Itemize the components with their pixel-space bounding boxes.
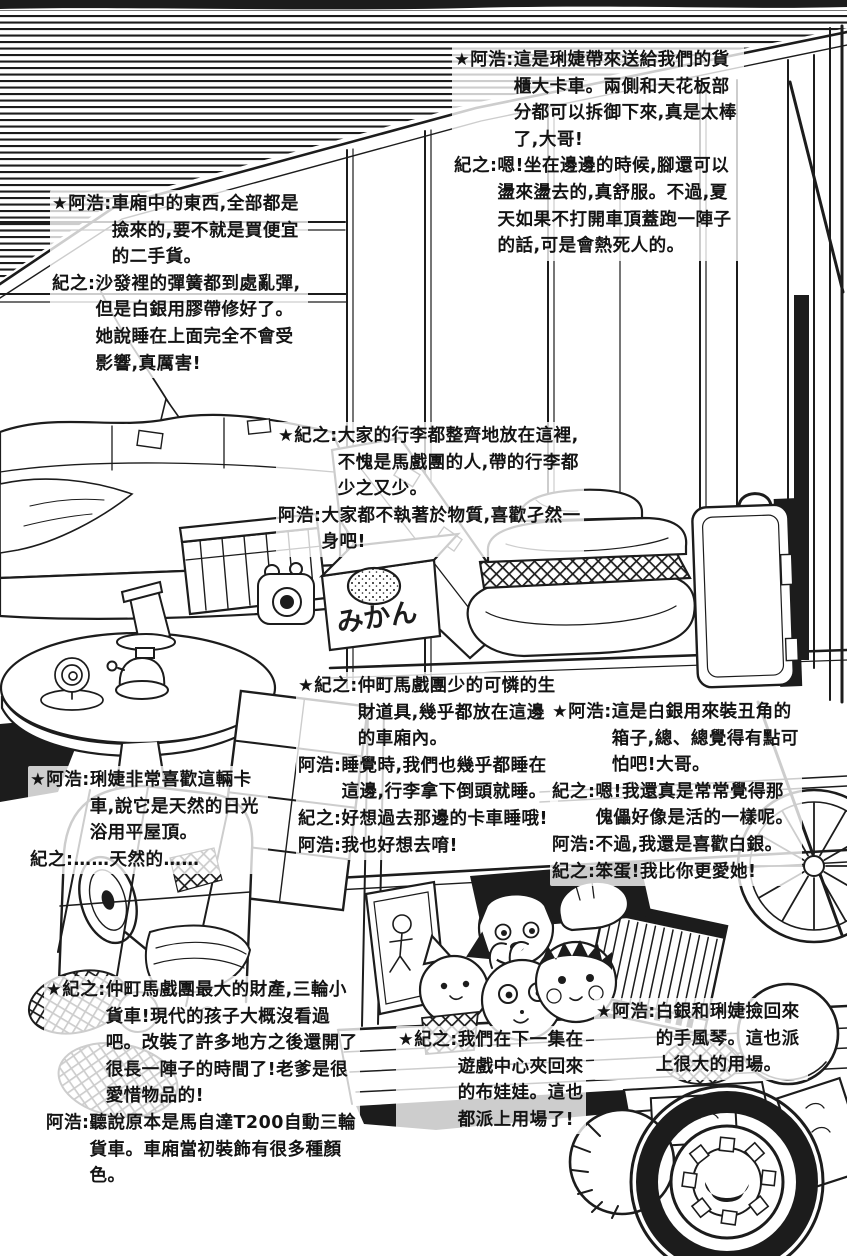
speaker-label: 紀之: xyxy=(454,153,498,180)
dialogue-line: ★紀之: 大家的行李都整齊地放在這裡,不愧是馬戲團的人,帶的行李都少之又少。 xyxy=(278,423,582,503)
dialogue-line: ★阿浩: 白銀和琍婕撿回來的手風琴。這也派上很大的用場。 xyxy=(596,999,806,1079)
caption-luggage: ★紀之: 大家的行李都整齊地放在這裡,不愧是馬戲團的人,帶的行李都少之又少。 阿… xyxy=(276,422,584,557)
dialogue-text: 睡覺時,我們也幾乎都睡在這邊,行李拿下倒頭就睡。 xyxy=(342,753,557,806)
dialogue-text: 車廂中的東西,全部都是撿來的,要不就是買便宜的二手貨。 xyxy=(112,191,306,271)
speaker-label: ★阿浩: xyxy=(30,767,90,794)
speaker-label: 紀之: xyxy=(52,271,96,298)
speaker-label: ★紀之: xyxy=(46,977,106,1004)
dialogue-line: 紀之: 沙發裡的彈簧都到處亂彈,但是白銀用膠帶修好了。她說睡在上面完全不會受影響… xyxy=(52,271,306,377)
caption-cabin-contents: ★阿浩: 車廂中的東西,全部都是撿來的,要不就是買便宜的二手貨。 紀之: 沙發裡… xyxy=(50,190,308,378)
dialogue-line: ★阿浩: 這是白銀用來裝丑角的箱子,總、總覺得有點可怕吧!大哥。 xyxy=(552,699,800,779)
caption-container-truck: ★阿浩: 這是琍婕帶來送給我們的貨櫃大卡車。兩側和天花板部分都可以拆御下來,真是… xyxy=(452,46,744,261)
page-top-edge xyxy=(0,0,847,9)
speaker-label: 阿浩: xyxy=(46,1110,90,1137)
speaker-label: 阿浩: xyxy=(298,753,342,780)
dialogue-text: 我也好想去唷! xyxy=(342,833,557,860)
speaker-label: 阿浩: xyxy=(552,832,596,859)
speaker-label: ★阿浩: xyxy=(596,999,656,1026)
speaker-label: 阿浩: xyxy=(298,833,342,860)
dialogue-text: 嗯!我還真是常常覺得那傀儡好像是活的一樣呢。 xyxy=(596,779,801,832)
dialogue-text: 這是白銀用來裝丑角的箱子,總、總覺得有點可怕吧!大哥。 xyxy=(612,699,800,779)
dialogue-text: 聽說原本是馬自達T200自動三輪貨車。車廂當初裝飾有很多種顏色。 xyxy=(90,1110,359,1190)
dialogue-text: 好想過去那邊的卡車睡哦! xyxy=(342,806,557,833)
caption-accordion: ★阿浩: 白銀和琍婕撿回來的手風琴。這也派上很大的用場。 xyxy=(594,998,808,1080)
dialogue-text: 琍婕非常喜歡這輛卡車,說它是天然的日光浴用平屋頂。 xyxy=(90,767,266,847)
dialogue-text: 仲町馬戲團少的可憐的生財道具,幾乎都放在這邊的車廂內。 xyxy=(358,673,556,753)
caption-three-wheeler: ★紀之: 仲町馬戲團最大的財產,三輪小貨車!現代的孩子大概沒看過吧。改裝了許多地… xyxy=(44,976,360,1191)
dialogue-line: 紀之: 嗯!坐在邊邊的時候,腳還可以盪來盪去的,真舒服。不過,夏天如果不打開車頂… xyxy=(454,153,742,259)
caption-flat-roof: ★阿浩: 琍婕非常喜歡這輛卡車,說它是天然的日光浴用平屋頂。 紀之: ……天然的… xyxy=(28,766,268,874)
dialogue-text: 大家的行李都整齊地放在這裡,不愧是馬戲團的人,帶的行李都少之又少。 xyxy=(338,423,582,503)
dialogue-line: ★紀之: 我們在下一集在遊戲中心夾回來的布娃娃。這也都派上用場了! xyxy=(398,1027,584,1133)
dialogue-line: 紀之: ……天然的…… xyxy=(30,847,266,874)
dialogue-line: ★阿浩: 這是琍婕帶來送給我們的貨櫃大卡車。兩側和天花板部分都可以拆御下來,真是… xyxy=(454,47,742,153)
dialogue-line: 阿浩: 不過,我還是喜歡白銀。 xyxy=(552,832,800,859)
dialogue-line: 阿浩: 我也好想去唷! xyxy=(298,833,556,860)
dialogue-text: 不過,我還是喜歡白銀。 xyxy=(596,832,801,859)
dialogue-line: 阿浩: 睡覺時,我們也幾乎都睡在這邊,行李拿下倒頭就睡。 xyxy=(298,753,556,806)
dialogue-text: 笨蛋!我比你更愛她! xyxy=(596,859,801,886)
dialogue-line: 紀之: 嗯!我還真是常常覺得那傀儡好像是活的一樣呢。 xyxy=(552,779,800,832)
speaker-label: 紀之: xyxy=(298,806,342,833)
dialogue-text: 沙發裡的彈簧都到處亂彈,但是白銀用膠帶修好了。她說睡在上面完全不會受影響,真厲害… xyxy=(96,271,307,377)
speaker-label: ★紀之: xyxy=(278,423,338,450)
dialogue-text: ……天然的…… xyxy=(74,847,267,874)
dialogue-line: ★紀之: 仲町馬戲團最大的財產,三輪小貨車!現代的孩子大概沒看過吧。改裝了許多地… xyxy=(46,977,358,1110)
manga-page: みかん xyxy=(0,0,847,1256)
speaker-label: 紀之: xyxy=(30,847,74,874)
speaker-label: 阿浩: xyxy=(278,503,322,530)
dialogue-text: 大家都不執著於物質,喜歡孑然一身吧! xyxy=(322,503,583,556)
caption-plush-toys: ★紀之: 我們在下一集在遊戲中心夾回來的布娃娃。這也都派上用場了! xyxy=(396,1026,586,1134)
suitcase xyxy=(692,492,803,690)
speaker-label: ★阿浩: xyxy=(454,47,514,74)
dialogue-text: 我們在下一集在遊戲中心夾回來的布娃娃。這也都派上用場了! xyxy=(458,1027,584,1133)
dialogue-line: ★阿浩: 琍婕非常喜歡這輛卡車,說它是天然的日光浴用平屋頂。 xyxy=(30,767,266,847)
dialogue-text: 嗯!坐在邊邊的時候,腳還可以盪來盪去的,真舒服。不過,夏天如果不打開車頂蓋跑一陣… xyxy=(498,153,743,259)
dialogue-line: 阿浩: 大家都不執著於物質,喜歡孑然一身吧! xyxy=(278,503,582,556)
dialogue-line: 紀之: 笨蛋!我比你更愛她! xyxy=(552,859,800,886)
speaker-label: ★阿浩: xyxy=(52,191,112,218)
speaker-label: 紀之: xyxy=(552,859,596,886)
dialogue-text: 白銀和琍婕撿回來的手風琴。這也派上很大的用場。 xyxy=(656,999,806,1079)
speaker-label: 紀之: xyxy=(552,779,596,806)
dialogue-line: ★阿浩: 車廂中的東西,全部都是撿來的,要不就是買便宜的二手貨。 xyxy=(52,191,306,271)
speaker-label: ★紀之: xyxy=(298,673,358,700)
speaker-label: ★紀之: xyxy=(398,1027,458,1054)
dialogue-line: 紀之: 好想過去那邊的卡車睡哦! xyxy=(298,806,556,833)
dialogue-text: 這是琍婕帶來送給我們的貨櫃大卡車。兩側和天花板部分都可以拆御下來,真是太棒了,大… xyxy=(514,47,742,153)
dialogue-line: ★紀之: 仲町馬戲團少的可憐的生財道具,幾乎都放在這邊的車廂內。 xyxy=(298,673,556,753)
dialogue-text: 仲町馬戲團最大的財產,三輪小貨車!現代的孩子大概沒看過吧。改裝了許多地方之後還開… xyxy=(106,977,358,1110)
dialogue-line: 阿浩: 聽說原本是馬自達T200自動三輪貨車。車廂當初裝飾有很多種顏色。 xyxy=(46,1110,358,1190)
caption-cargo-bed: ★紀之: 仲町馬戲團少的可憐的生財道具,幾乎都放在這邊的車廂內。 阿浩: 睡覺時… xyxy=(296,672,558,860)
speaker-label: ★阿浩: xyxy=(552,699,612,726)
caption-clown-box: ★阿浩: 這是白銀用來裝丑角的箱子,總、總覺得有點可怕吧!大哥。 紀之: 嗯!我… xyxy=(550,698,802,886)
